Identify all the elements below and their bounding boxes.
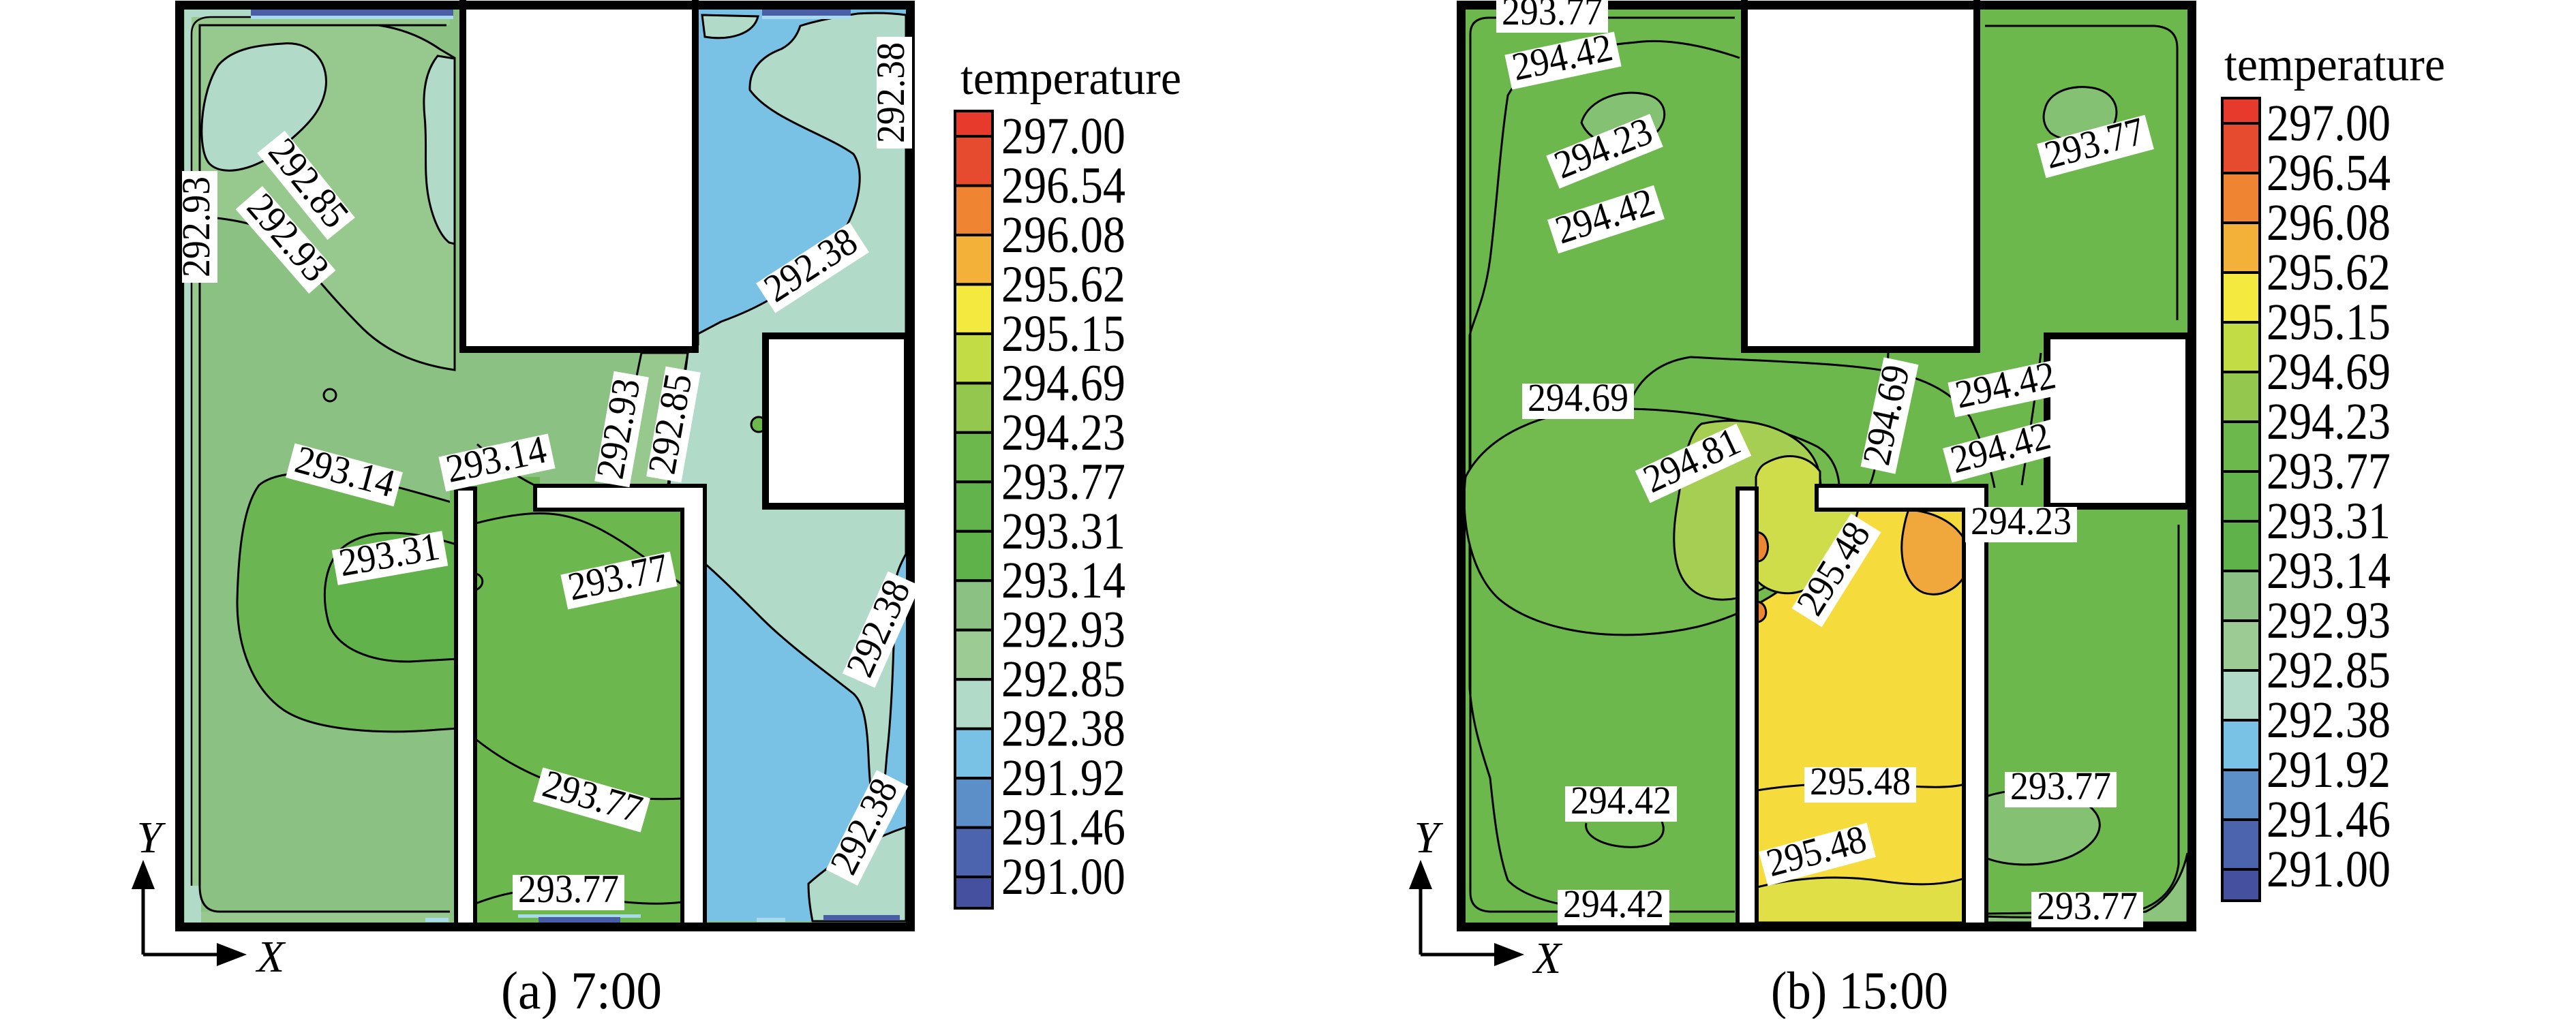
svg-text:293.77: 293.77: [2267, 443, 2391, 500]
svg-text:293.14: 293.14: [2267, 542, 2391, 600]
svg-text:291.00: 291.00: [2267, 841, 2391, 898]
svg-text:291.46: 291.46: [2267, 791, 2391, 848]
svg-text:Y: Y: [137, 813, 166, 863]
svg-text:294.69: 294.69: [1001, 354, 1125, 412]
svg-text:292.93: 292.93: [2267, 592, 2391, 649]
svg-text:293.77: 293.77: [2037, 884, 2138, 928]
svg-text:297.00: 297.00: [1001, 108, 1125, 165]
svg-text:X: X: [255, 932, 286, 982]
svg-text:296.08: 296.08: [2267, 194, 2391, 251]
svg-text:292.85: 292.85: [1001, 651, 1125, 708]
svg-text:X: X: [1532, 933, 1563, 983]
svg-text:295.62: 295.62: [2267, 244, 2391, 301]
svg-text:293.14: 293.14: [1001, 552, 1125, 609]
svg-text:292.38: 292.38: [2267, 692, 2391, 749]
svg-text:295.15: 295.15: [1001, 305, 1125, 362]
svg-text:292.93: 292.93: [1001, 602, 1125, 659]
svg-text:294.42: 294.42: [1563, 882, 1664, 926]
svg-text:294.42: 294.42: [1571, 778, 1671, 822]
svg-text:293.77: 293.77: [1001, 453, 1125, 510]
svg-text:292.93: 292.93: [174, 176, 218, 277]
svg-text:296.54: 296.54: [1001, 157, 1125, 215]
svg-text:294.69: 294.69: [2267, 343, 2391, 401]
svg-text:291.92: 291.92: [1001, 749, 1125, 807]
svg-text:292.38: 292.38: [868, 42, 913, 143]
svg-text:294.69: 294.69: [1528, 375, 1628, 420]
svg-text:296.08: 296.08: [1001, 206, 1125, 264]
svg-text:295.62: 295.62: [1001, 255, 1125, 313]
svg-text:293.31: 293.31: [2267, 493, 2391, 550]
svg-text:294.23: 294.23: [1971, 499, 2072, 543]
svg-text:294.23: 294.23: [2267, 393, 2391, 450]
svg-text:291.00: 291.00: [1001, 848, 1125, 905]
svg-text:292.85: 292.85: [2267, 642, 2391, 699]
svg-text:296.54: 296.54: [2267, 144, 2391, 202]
svg-text:293.77: 293.77: [2010, 764, 2111, 808]
svg-text:temperature: temperature: [2224, 39, 2445, 91]
svg-text:292.38: 292.38: [1001, 700, 1125, 758]
svg-text:temperature: temperature: [960, 52, 1181, 105]
svg-text:(a) 7:00: (a) 7:00: [501, 961, 662, 1019]
svg-text:295.48: 295.48: [1810, 759, 1911, 803]
svg-text:293.31: 293.31: [1001, 503, 1125, 560]
svg-text:291.46: 291.46: [1001, 799, 1125, 856]
svg-text:(b) 15:00: (b) 15:00: [1771, 961, 1948, 1019]
svg-text:295.15: 295.15: [2267, 294, 2391, 351]
svg-text:291.92: 291.92: [2267, 741, 2391, 799]
svg-text:Y: Y: [1414, 813, 1444, 863]
svg-text:297.00: 297.00: [2267, 95, 2391, 152]
svg-text:294.23: 294.23: [1001, 404, 1125, 461]
svg-text:293.77: 293.77: [518, 867, 619, 911]
